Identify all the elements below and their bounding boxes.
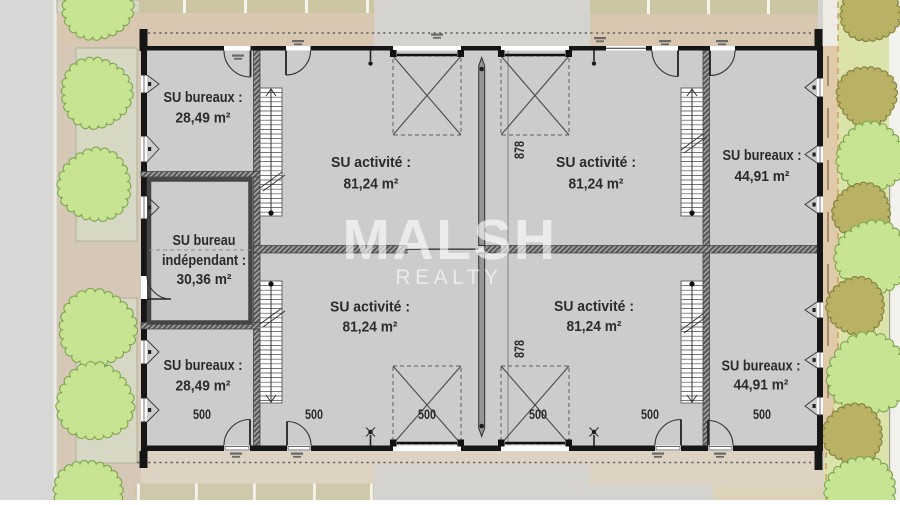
svg-text:878: 878 <box>512 340 527 358</box>
svg-text:500: 500 <box>305 407 323 422</box>
svg-text:500: 500 <box>193 407 211 422</box>
svg-text:500: 500 <box>753 407 771 422</box>
svg-text:878: 878 <box>512 141 527 159</box>
svg-text:500: 500 <box>641 407 659 422</box>
svg-text:REALTY: REALTY <box>395 266 502 289</box>
svg-text:MALSH: MALSH <box>342 208 557 272</box>
svg-text:500: 500 <box>418 407 436 422</box>
svg-text:500: 500 <box>529 407 547 422</box>
